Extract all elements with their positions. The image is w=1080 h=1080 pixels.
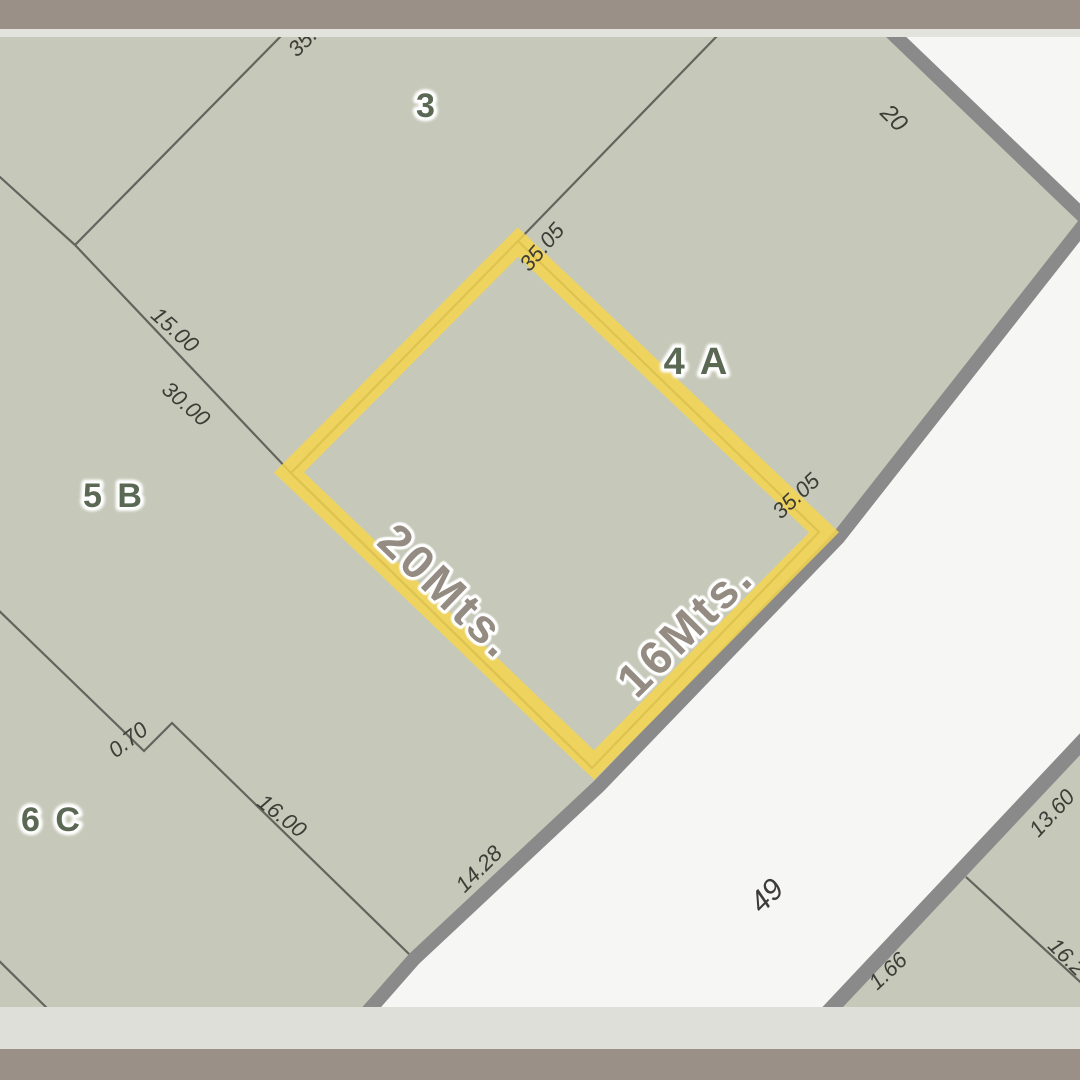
svg-text:5 B: 5 B — [83, 477, 145, 515]
svg-text:6 C: 6 C — [21, 801, 83, 839]
svg-text:4 A: 4 A — [664, 341, 731, 383]
svg-text:3: 3 — [416, 87, 438, 125]
